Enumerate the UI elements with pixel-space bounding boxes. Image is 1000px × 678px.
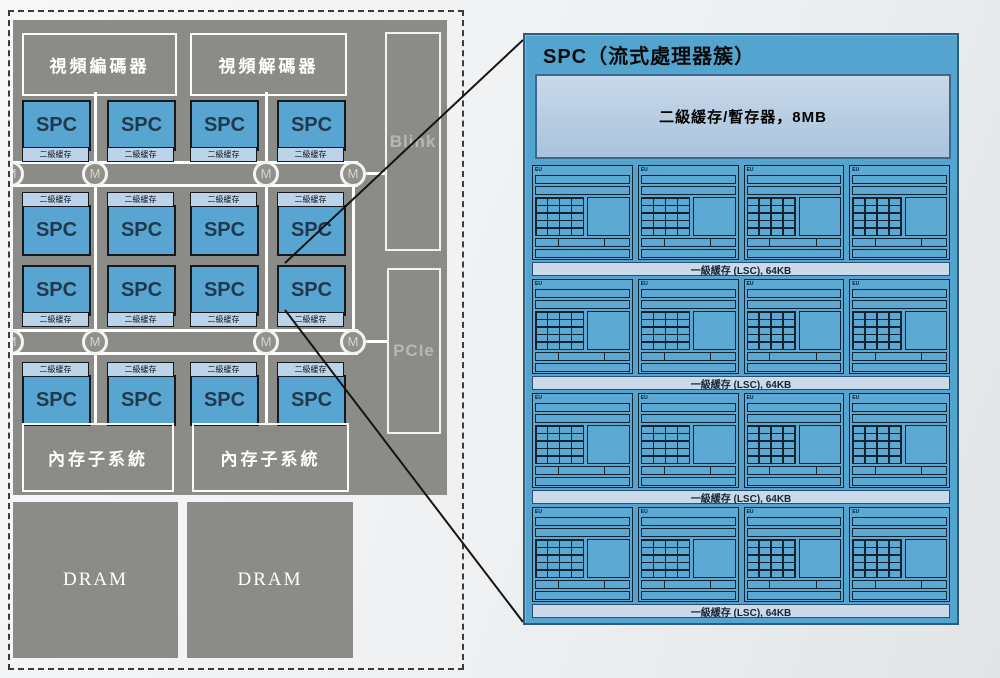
spc-l2-cache-strip: 二級緩存 (22, 312, 89, 327)
eu-tile-bottom-cells (852, 352, 947, 361)
eu-tile-core-area (852, 311, 947, 350)
eu-tile-bottom-bar (641, 591, 736, 600)
eu-tile-bottom-bar (641, 477, 736, 486)
spc-l2-cache-strip: 二級緩存 (107, 192, 174, 207)
eu-tile-register-bar (535, 403, 630, 412)
eu-side-block (693, 539, 735, 578)
eu-tile-bottom-bar (641, 363, 736, 372)
blink-label: Blink (390, 132, 437, 152)
bus-node-m: M (82, 161, 108, 187)
eu-tile-core-area (535, 539, 630, 578)
dram-block: DRAM (187, 502, 353, 658)
eu-tile-register-bar (641, 175, 736, 184)
spc-detail-panel: SPC（流式處理器簇） 二級緩存/暫存器，8MB EU EU EU (523, 33, 959, 625)
eu-tile-register-bar (535, 300, 630, 309)
spc-l2-cache-strip: 二級緩存 (107, 312, 174, 327)
dram-label: DRAM (63, 569, 128, 591)
eu-core-grid (852, 311, 901, 350)
l1-cache-strip: 一級緩存 (LSC), 64KB (532, 262, 950, 276)
eu-tile-label: EU (747, 395, 842, 401)
eu-tile-register-bar (535, 186, 630, 195)
eu-tile-label: EU (852, 509, 947, 515)
spc-l2-cache-strip: 二級緩存 (107, 362, 174, 377)
eu-core-grid (641, 197, 690, 236)
eu-tile: EU (638, 165, 739, 260)
eu-tile: EU (638, 393, 739, 488)
eu-tile-bottom-cells (747, 352, 842, 361)
eu-side-block (799, 197, 841, 236)
eu-tile-core-area (852, 539, 947, 578)
eu-tile-bottom-cells (641, 352, 736, 361)
bus-line (13, 352, 358, 355)
eu-side-block (587, 425, 629, 464)
eu-tile-core-area (747, 311, 842, 350)
eu-tile-register-bar (535, 414, 630, 423)
spc-l2-cache-strip: 二級緩存 (277, 147, 344, 162)
eu-core-grid (641, 311, 690, 350)
eu-tile-label: EU (852, 395, 947, 401)
eu-tile-register-bar (747, 289, 842, 298)
eu-tile-register-bar (747, 186, 842, 195)
spc-block: SPC (190, 265, 259, 316)
eu-side-block (693, 425, 735, 464)
eu-tile-register-bar (641, 517, 736, 526)
spc-block: SPC (190, 205, 259, 256)
spc-block: SPC (22, 375, 91, 426)
eu-core-grid (852, 425, 901, 464)
eu-tile: EU (744, 279, 845, 374)
eu-tile-core-area (535, 425, 630, 464)
eu-core-grid (641, 425, 690, 464)
eu-core-grid (747, 539, 796, 578)
eu-tile-register-bar (852, 186, 947, 195)
spc-l2-cache-strip: 二級緩存 (22, 192, 89, 207)
eu-tile-core-area (641, 197, 736, 236)
eu-tile-row: EU EU EU (532, 507, 950, 602)
bus-node-m: M (253, 161, 279, 187)
bus-node-m: M (253, 329, 279, 355)
eu-tile-bottom-bar (535, 591, 630, 600)
bus-stub-pcie (366, 340, 387, 343)
eu-tile-register-bar (747, 403, 842, 412)
eu-tile-bottom-cells (852, 466, 947, 475)
eu-tile-bottom-cells (535, 238, 630, 247)
eu-tile: EU (744, 165, 845, 260)
eu-tile-bottom-cells (535, 580, 630, 589)
eu-side-block (799, 311, 841, 350)
eu-tile: EU (532, 393, 633, 488)
eu-tile-bottom-bar (852, 363, 947, 372)
eu-tile-core-area (747, 197, 842, 236)
bus-line (13, 329, 358, 332)
eu-tile-bottom-cells (747, 466, 842, 475)
spc-block: SPC (22, 100, 91, 151)
eu-tile-bottom-cells (852, 580, 947, 589)
eu-side-block (587, 539, 629, 578)
eu-tile-bottom-cells (852, 238, 947, 247)
eu-tile-bottom-bar (747, 249, 842, 258)
bus-stub-blink (366, 172, 385, 175)
eu-tile-register-bar (747, 517, 842, 526)
eu-side-block (905, 197, 947, 236)
eu-tile-bottom-bar (852, 591, 947, 600)
eu-tile: EU (849, 393, 950, 488)
blink-block: Blink (385, 32, 441, 251)
eu-tile-register-bar (641, 528, 736, 537)
spc-l2-cache-strip: 二級緩存 (277, 192, 344, 207)
soc-chip: 視頻編碼器 視頻解碼器 Blink PCIe MMMMMMMM SPC二級緩存S… (13, 20, 447, 495)
dram-block: DRAM (13, 502, 178, 658)
eu-tile-bottom-cells (535, 352, 630, 361)
eu-tile: EU (532, 279, 633, 374)
l1-cache-strip: 一級緩存 (LSC), 64KB (532, 604, 950, 618)
eu-tile-grid: EU EU EU (532, 165, 950, 621)
spc-block: SPC (22, 265, 91, 316)
eu-tile-label: EU (641, 167, 736, 173)
dram-label: DRAM (237, 569, 302, 591)
spc-block: SPC (190, 375, 259, 426)
eu-tile: EU (849, 507, 950, 602)
eu-side-block (693, 311, 735, 350)
bus-node-m: M (340, 161, 366, 187)
eu-core-grid (747, 311, 796, 350)
eu-tile-register-bar (535, 528, 630, 537)
eu-tile-register-bar (535, 517, 630, 526)
eu-tile-label: EU (747, 281, 842, 287)
eu-tile-core-area (852, 425, 947, 464)
eu-tile-register-bar (852, 414, 947, 423)
spc-block: SPC (277, 100, 346, 151)
bus-vertical (94, 92, 97, 423)
eu-core-grid (747, 197, 796, 236)
spc-block: SPC (107, 265, 176, 316)
spc-block: SPC (107, 100, 176, 151)
eu-tile-register-bar (641, 300, 736, 309)
eu-tile-register-bar (747, 414, 842, 423)
eu-tile-register-bar (852, 175, 947, 184)
spc-l2-cache-strip: 二級緩存 (107, 147, 174, 162)
diagram-canvas: 視頻編碼器 視頻解碼器 Blink PCIe MMMMMMMM SPC二級緩存S… (0, 0, 1000, 678)
eu-tile-register-bar (535, 175, 630, 184)
eu-tile-bottom-cells (747, 238, 842, 247)
l2-cache-scratchpad-label: 二級緩存/暫存器，8MB (659, 106, 827, 127)
eu-core-grid (535, 425, 584, 464)
eu-tile-bottom-bar (747, 363, 842, 372)
eu-tile-register-bar (852, 403, 947, 412)
memory-subsystem-label: 內存子系統 (221, 445, 321, 470)
eu-tile-register-bar (535, 289, 630, 298)
eu-tile: EU (638, 507, 739, 602)
eu-tile-label: EU (535, 281, 630, 287)
eu-tile-bottom-bar (852, 477, 947, 486)
eu-tile-core-area (641, 539, 736, 578)
eu-tile-bottom-bar (747, 477, 842, 486)
eu-tile-bottom-cells (641, 466, 736, 475)
eu-tile-core-area (747, 539, 842, 578)
eu-tile-label: EU (641, 395, 736, 401)
spc-panel-title: SPC（流式處理器簇） (543, 40, 755, 69)
memory-subsystem-block: 內存子系統 (192, 423, 349, 492)
eu-core-grid (535, 539, 584, 578)
spc-block: SPC (107, 205, 176, 256)
spc-l2-cache-strip: 二級緩存 (277, 362, 344, 377)
eu-tile-bottom-cells (641, 580, 736, 589)
eu-side-block (799, 539, 841, 578)
eu-tile-bottom-bar (535, 363, 630, 372)
l1-cache-strip: 一級緩存 (LSC), 64KB (532, 376, 950, 390)
eu-tile: EU (849, 165, 950, 260)
eu-tile-bottom-bar (852, 249, 947, 258)
eu-tile-register-bar (747, 300, 842, 309)
eu-tile-label: EU (535, 167, 630, 173)
eu-core-grid (535, 197, 584, 236)
eu-tile-bottom-bar (747, 591, 842, 600)
memory-subsystem-block: 內存子系統 (22, 423, 174, 492)
spc-block: SPC (277, 375, 346, 426)
eu-tile-label: EU (641, 509, 736, 515)
eu-tile-label: EU (641, 281, 736, 287)
bus-line (13, 184, 358, 187)
eu-core-grid (535, 311, 584, 350)
eu-core-grid (852, 539, 901, 578)
video-decoder-label: 視頻解碼器 (219, 52, 319, 77)
eu-side-block (799, 425, 841, 464)
spc-l2-cache-strip: 二級緩存 (190, 192, 257, 207)
l2-cache-scratchpad-block: 二級緩存/暫存器，8MB (535, 74, 951, 159)
video-decoder-block: 視頻解碼器 (190, 33, 347, 96)
eu-tile-register-bar (747, 528, 842, 537)
spc-block: SPC (277, 265, 346, 316)
eu-tile-label: EU (535, 395, 630, 401)
eu-tile-label: EU (535, 509, 630, 515)
eu-tile: EU (744, 393, 845, 488)
l1-cache-strip: 一級緩存 (LSC), 64KB (532, 490, 950, 504)
bus-node-m: M (340, 329, 366, 355)
eu-tile-bottom-bar (535, 477, 630, 486)
eu-tile-bottom-bar (535, 249, 630, 258)
memory-subsystem-label: 內存子系統 (48, 445, 148, 470)
eu-tile-register-bar (641, 186, 736, 195)
eu-tile-core-area (641, 311, 736, 350)
eu-side-block (587, 311, 629, 350)
eu-side-block (693, 197, 735, 236)
eu-tile-register-bar (747, 175, 842, 184)
spc-block: SPC (22, 205, 91, 256)
eu-tile-label: EU (747, 167, 842, 173)
eu-tile-row: EU EU EU (532, 165, 950, 260)
spc-block: SPC (107, 375, 176, 426)
eu-side-block (587, 197, 629, 236)
eu-tile-bottom-cells (641, 238, 736, 247)
eu-tile-register-bar (641, 403, 736, 412)
spc-block: SPC (190, 100, 259, 151)
eu-tile-bottom-bar (641, 249, 736, 258)
spc-l2-cache-strip: 二級緩存 (190, 147, 257, 162)
spc-l2-cache-strip: 二級緩存 (22, 147, 89, 162)
eu-tile: EU (744, 507, 845, 602)
eu-tile-bottom-cells (535, 466, 630, 475)
eu-tile-register-bar (641, 289, 736, 298)
eu-core-grid (641, 539, 690, 578)
pcie-label: PCIe (393, 341, 435, 361)
eu-side-block (905, 425, 947, 464)
eu-tile-core-area (852, 197, 947, 236)
spc-block: SPC (277, 205, 346, 256)
eu-side-block (905, 311, 947, 350)
eu-tile-row: EU EU EU (532, 393, 950, 488)
pcie-block: PCIe (387, 268, 441, 434)
eu-tile: EU (638, 279, 739, 374)
eu-core-grid (747, 425, 796, 464)
eu-tile: EU (532, 507, 633, 602)
spc-l2-cache-strip: 二級緩存 (190, 362, 257, 377)
eu-tile-core-area (535, 311, 630, 350)
spc-l2-cache-strip: 二級緩存 (22, 362, 89, 377)
eu-tile-register-bar (852, 528, 947, 537)
bus-vertical (265, 92, 268, 423)
spc-l2-cache-strip: 二級緩存 (190, 312, 257, 327)
eu-tile-register-bar (641, 414, 736, 423)
eu-tile-register-bar (852, 300, 947, 309)
video-encoder-label: 視頻編碼器 (50, 52, 150, 77)
bus-vertical (352, 174, 355, 342)
eu-tile: EU (849, 279, 950, 374)
eu-tile-bottom-cells (747, 580, 842, 589)
eu-tile-core-area (641, 425, 736, 464)
eu-tile-register-bar (852, 289, 947, 298)
spc-l2-cache-strip: 二級緩存 (277, 312, 344, 327)
eu-tile: EU (532, 165, 633, 260)
eu-tile-label: EU (852, 167, 947, 173)
eu-tile-label: EU (747, 509, 842, 515)
eu-core-grid (852, 197, 901, 236)
eu-tile-core-area (535, 197, 630, 236)
eu-tile-row: EU EU EU (532, 279, 950, 374)
eu-tile-label: EU (852, 281, 947, 287)
eu-tile-register-bar (852, 517, 947, 526)
eu-tile-core-area (747, 425, 842, 464)
video-encoder-block: 視頻編碼器 (22, 33, 177, 96)
bus-node-m: M (82, 329, 108, 355)
eu-side-block (905, 539, 947, 578)
